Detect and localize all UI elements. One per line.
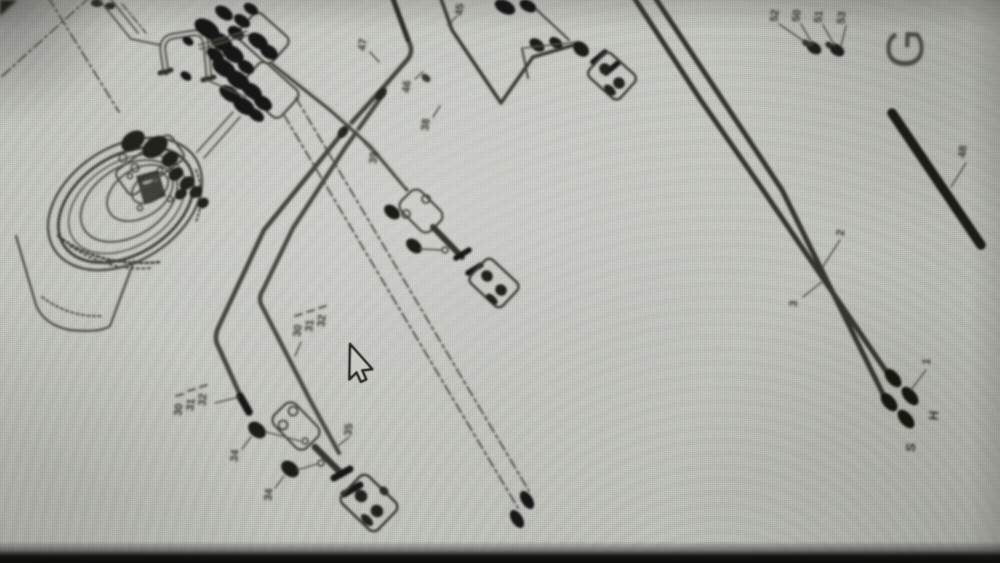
svg-text:1: 1	[921, 358, 934, 365]
svg-text:3: 3	[788, 300, 801, 307]
svg-text:H: H	[926, 410, 942, 421]
svg-text:39: 39	[367, 151, 380, 164]
svg-text:45: 45	[453, 3, 466, 16]
svg-text:47: 47	[356, 38, 369, 51]
svg-text:46: 46	[400, 80, 413, 93]
svg-text:32: 32	[315, 314, 328, 327]
svg-text:G: G	[876, 27, 935, 69]
svg-text:38: 38	[419, 118, 432, 131]
svg-text:35: 35	[342, 423, 355, 436]
svg-text:53: 53	[835, 11, 848, 24]
svg-text:34: 34	[228, 448, 241, 462]
svg-text:32: 32	[196, 393, 209, 406]
svg-text:2: 2	[835, 229, 848, 236]
svg-text:51: 51	[812, 10, 825, 23]
svg-text:52: 52	[768, 9, 781, 22]
svg-text:34: 34	[262, 487, 275, 501]
svg-text:48: 48	[956, 145, 969, 158]
svg-text:50: 50	[790, 9, 803, 22]
svg-text:S: S	[903, 442, 919, 453]
